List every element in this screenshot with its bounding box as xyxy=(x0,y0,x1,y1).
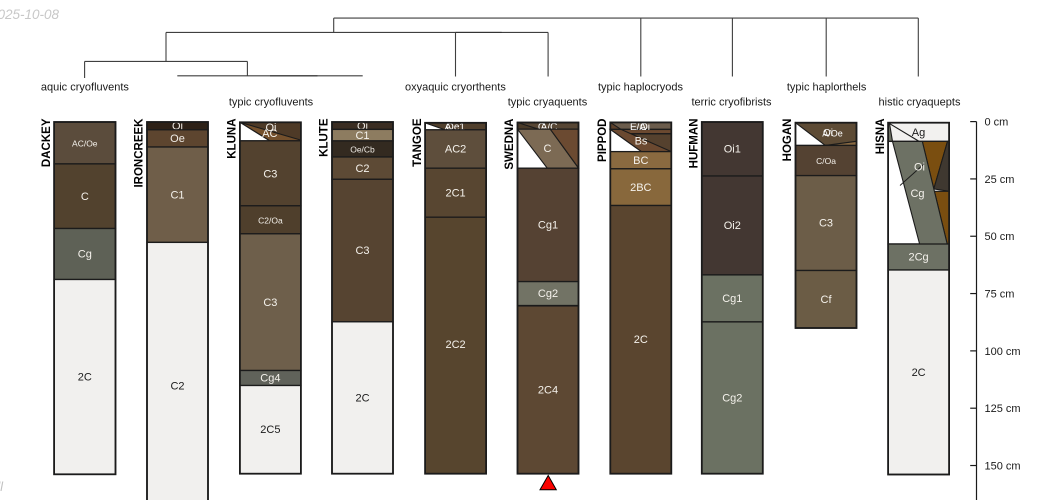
svg-text:aquic cryofluvents: aquic cryofluvents xyxy=(41,82,130,94)
svg-text:2C: 2C xyxy=(355,392,369,404)
svg-text:PIPPOD: PIPPOD xyxy=(597,119,609,162)
svg-text:Oe/Cb: Oe/Cb xyxy=(350,145,375,155)
svg-text:C2/Oa: C2/Oa xyxy=(258,215,283,225)
svg-text:C1: C1 xyxy=(355,130,369,142)
svg-text:IRONCREEK: IRONCREEK xyxy=(134,118,146,188)
svg-text:C: C xyxy=(544,143,552,155)
svg-text:2Cg: 2Cg xyxy=(909,252,929,264)
svg-text:histic cryaquepts: histic cryaquepts xyxy=(879,97,961,109)
svg-text:A/Oe: A/Oe xyxy=(822,129,843,139)
svg-text:Oi1: Oi1 xyxy=(724,144,741,156)
svg-text:BC: BC xyxy=(633,155,648,167)
svg-text:KLUNA: KLUNA xyxy=(227,119,239,159)
svg-text:75 cm: 75 cm xyxy=(985,289,1015,301)
svg-text:2C: 2C xyxy=(78,372,92,384)
svg-text:50 cm: 50 cm xyxy=(985,231,1015,243)
svg-text:Ag: Ag xyxy=(912,127,925,139)
svg-text:C3: C3 xyxy=(263,168,277,180)
svg-text:SWEDNA: SWEDNA xyxy=(504,119,516,170)
svg-text:Cf: Cf xyxy=(821,294,833,306)
svg-text:Cg2: Cg2 xyxy=(538,288,558,300)
svg-text:typic haplocryods: typic haplocryods xyxy=(598,82,683,94)
svg-text:2C1: 2C1 xyxy=(446,187,466,199)
svg-text:HOGAN: HOGAN xyxy=(782,119,794,162)
svg-text:C2: C2 xyxy=(355,163,369,175)
svg-text:Bs: Bs xyxy=(635,135,648,147)
svg-text:2C5: 2C5 xyxy=(260,424,280,436)
svg-text:Cg1: Cg1 xyxy=(722,293,742,305)
svg-text:Oe: Oe xyxy=(170,133,185,145)
svg-text:2C2: 2C2 xyxy=(446,339,466,351)
svg-text:typic cryofluvents: typic cryofluvents xyxy=(229,97,314,109)
svg-text:AC: AC xyxy=(262,128,277,140)
svg-text:C: C xyxy=(81,191,89,203)
svg-text:Oi: Oi xyxy=(640,122,650,133)
svg-text:150 cm: 150 cm xyxy=(985,461,1021,473)
svg-text:Oi2: Oi2 xyxy=(724,220,741,232)
svg-text:typic cryaquents: typic cryaquents xyxy=(508,97,588,109)
svg-text:typic haplorthels: typic haplorthels xyxy=(787,82,867,94)
svg-text:C/Oa: C/Oa xyxy=(816,156,836,166)
svg-text:Cg4: Cg4 xyxy=(260,373,280,385)
svg-text:Cg: Cg xyxy=(910,188,924,200)
svg-text:terric cryofibrists: terric cryofibrists xyxy=(691,97,772,109)
svg-text:0 cm: 0 cm xyxy=(985,117,1009,129)
svg-text:C2: C2 xyxy=(170,381,184,393)
svg-text:HUFMAN: HUFMAN xyxy=(689,119,701,169)
svg-text:Oi: Oi xyxy=(914,162,925,174)
svg-text:2C: 2C xyxy=(912,367,926,379)
svg-text:025-10-08: 025-10-08 xyxy=(0,7,60,22)
svg-text:2BC: 2BC xyxy=(630,182,651,194)
svg-text:C3: C3 xyxy=(819,218,833,230)
svg-text:C1: C1 xyxy=(170,189,184,201)
svg-text:TANGOE: TANGOE xyxy=(412,118,424,167)
svg-text:KLUTE: KLUTE xyxy=(319,118,331,157)
svg-text:C3: C3 xyxy=(355,245,369,257)
svg-text:AC2: AC2 xyxy=(445,144,466,156)
svg-text:25 cm: 25 cm xyxy=(985,174,1015,186)
svg-text:oxyaquic cryorthents: oxyaquic cryorthents xyxy=(405,82,506,94)
svg-text:Cg2: Cg2 xyxy=(722,392,742,404)
svg-text:2C4: 2C4 xyxy=(538,384,558,396)
svg-text:Cg1: Cg1 xyxy=(538,220,558,232)
svg-text:2C: 2C xyxy=(634,334,648,346)
svg-text:100 cm: 100 cm xyxy=(985,346,1021,358)
svg-text:DACKEY: DACKEY xyxy=(41,118,53,167)
svg-text:Cg: Cg xyxy=(78,249,92,261)
svg-text:AC/Oe: AC/Oe xyxy=(72,139,98,149)
svg-text:125 cm: 125 cm xyxy=(985,403,1021,415)
svg-text:C3: C3 xyxy=(263,297,277,309)
svg-text:HISNA: HISNA xyxy=(875,119,887,155)
